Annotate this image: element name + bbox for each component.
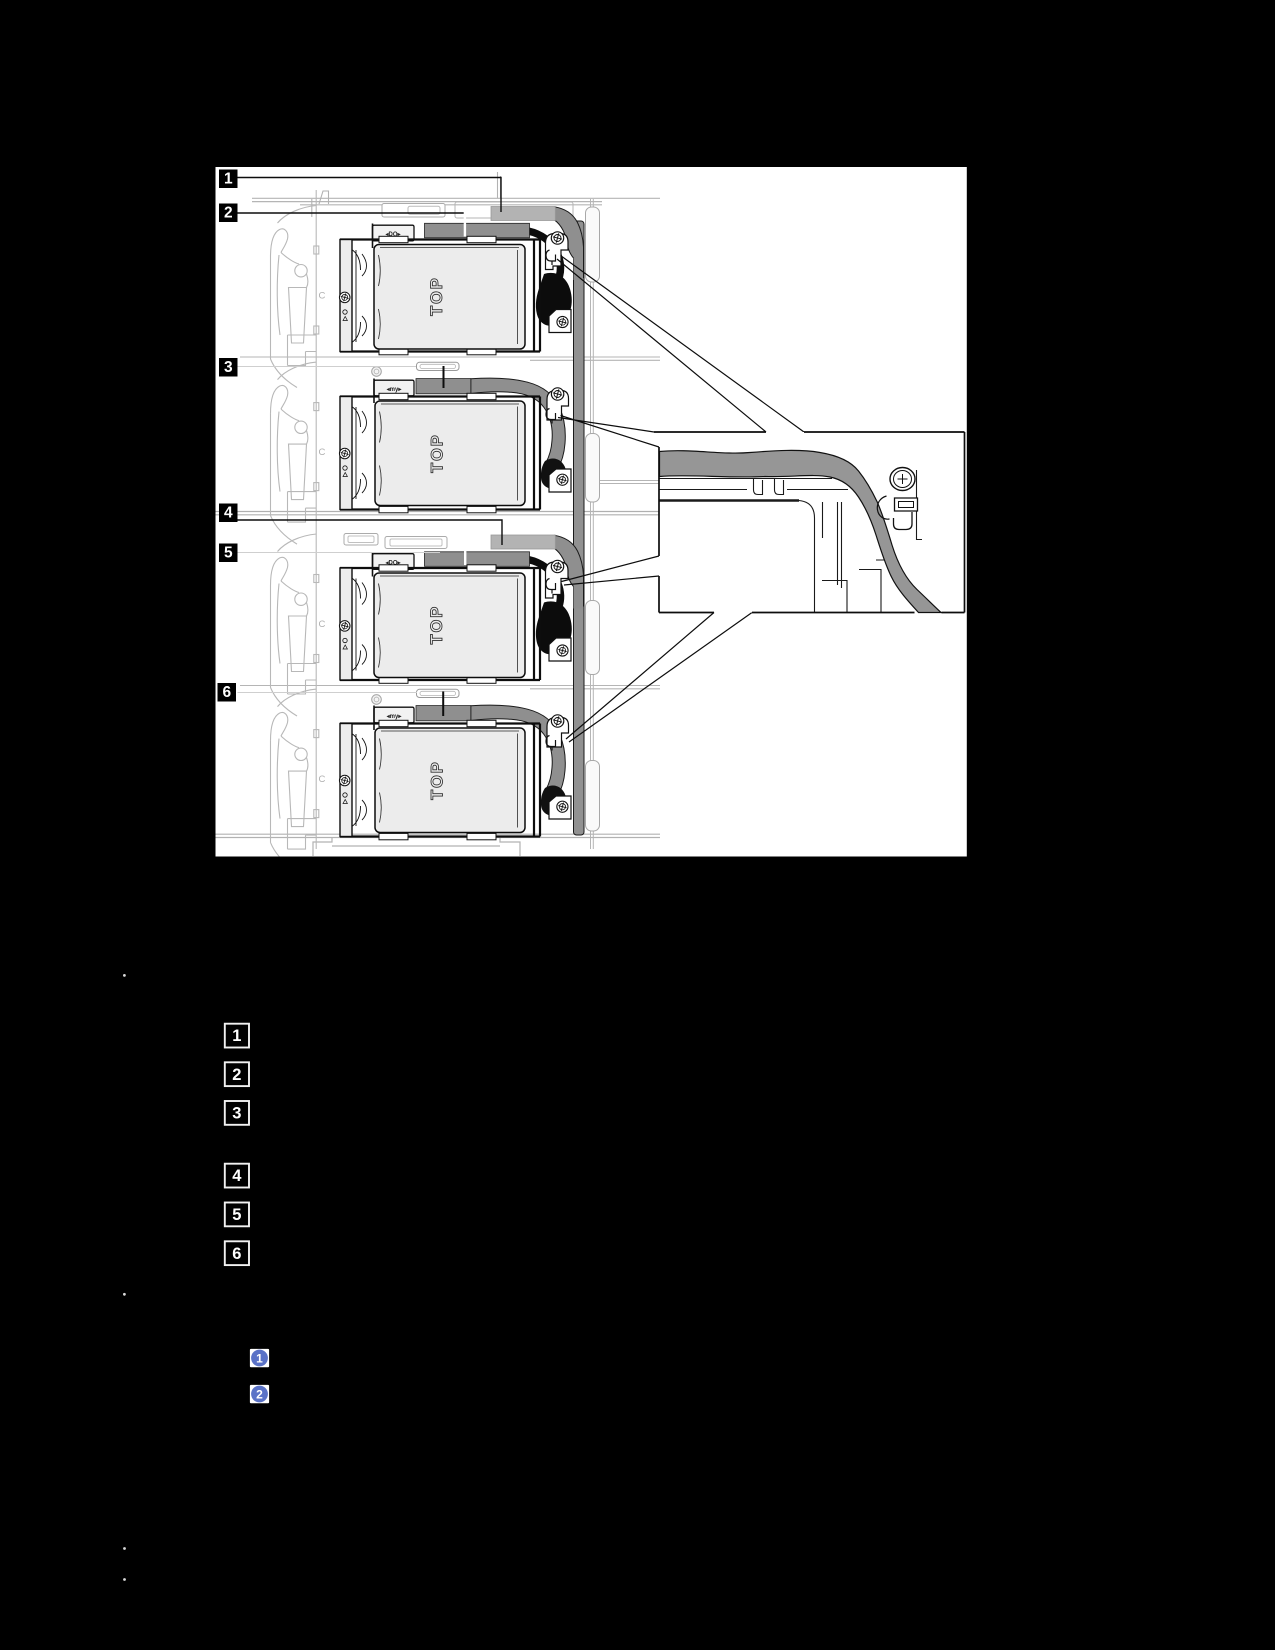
svg-text:6: 6 — [232, 1245, 241, 1263]
svg-text:1: 1 — [232, 1027, 241, 1045]
svg-text:4: 4 — [232, 1167, 242, 1185]
svg-text:4: 4 — [224, 505, 233, 522]
svg-text:3: 3 — [224, 359, 233, 376]
svg-text:TOP: TOP — [428, 276, 446, 316]
svg-text:TOP: TOP — [428, 433, 446, 473]
svg-text:5: 5 — [224, 545, 233, 562]
svg-text:6: 6 — [222, 684, 231, 701]
svg-text:2: 2 — [256, 1387, 263, 1401]
svg-text:5: 5 — [232, 1206, 241, 1224]
svg-text:1: 1 — [256, 1351, 263, 1365]
svg-text:1: 1 — [224, 171, 233, 188]
svg-text:◂my▸: ◂my▸ — [386, 387, 403, 393]
svg-text:3: 3 — [232, 1105, 241, 1123]
svg-text:2: 2 — [224, 205, 233, 222]
svg-text:C: C — [319, 291, 326, 302]
svg-text:2: 2 — [232, 1066, 241, 1084]
